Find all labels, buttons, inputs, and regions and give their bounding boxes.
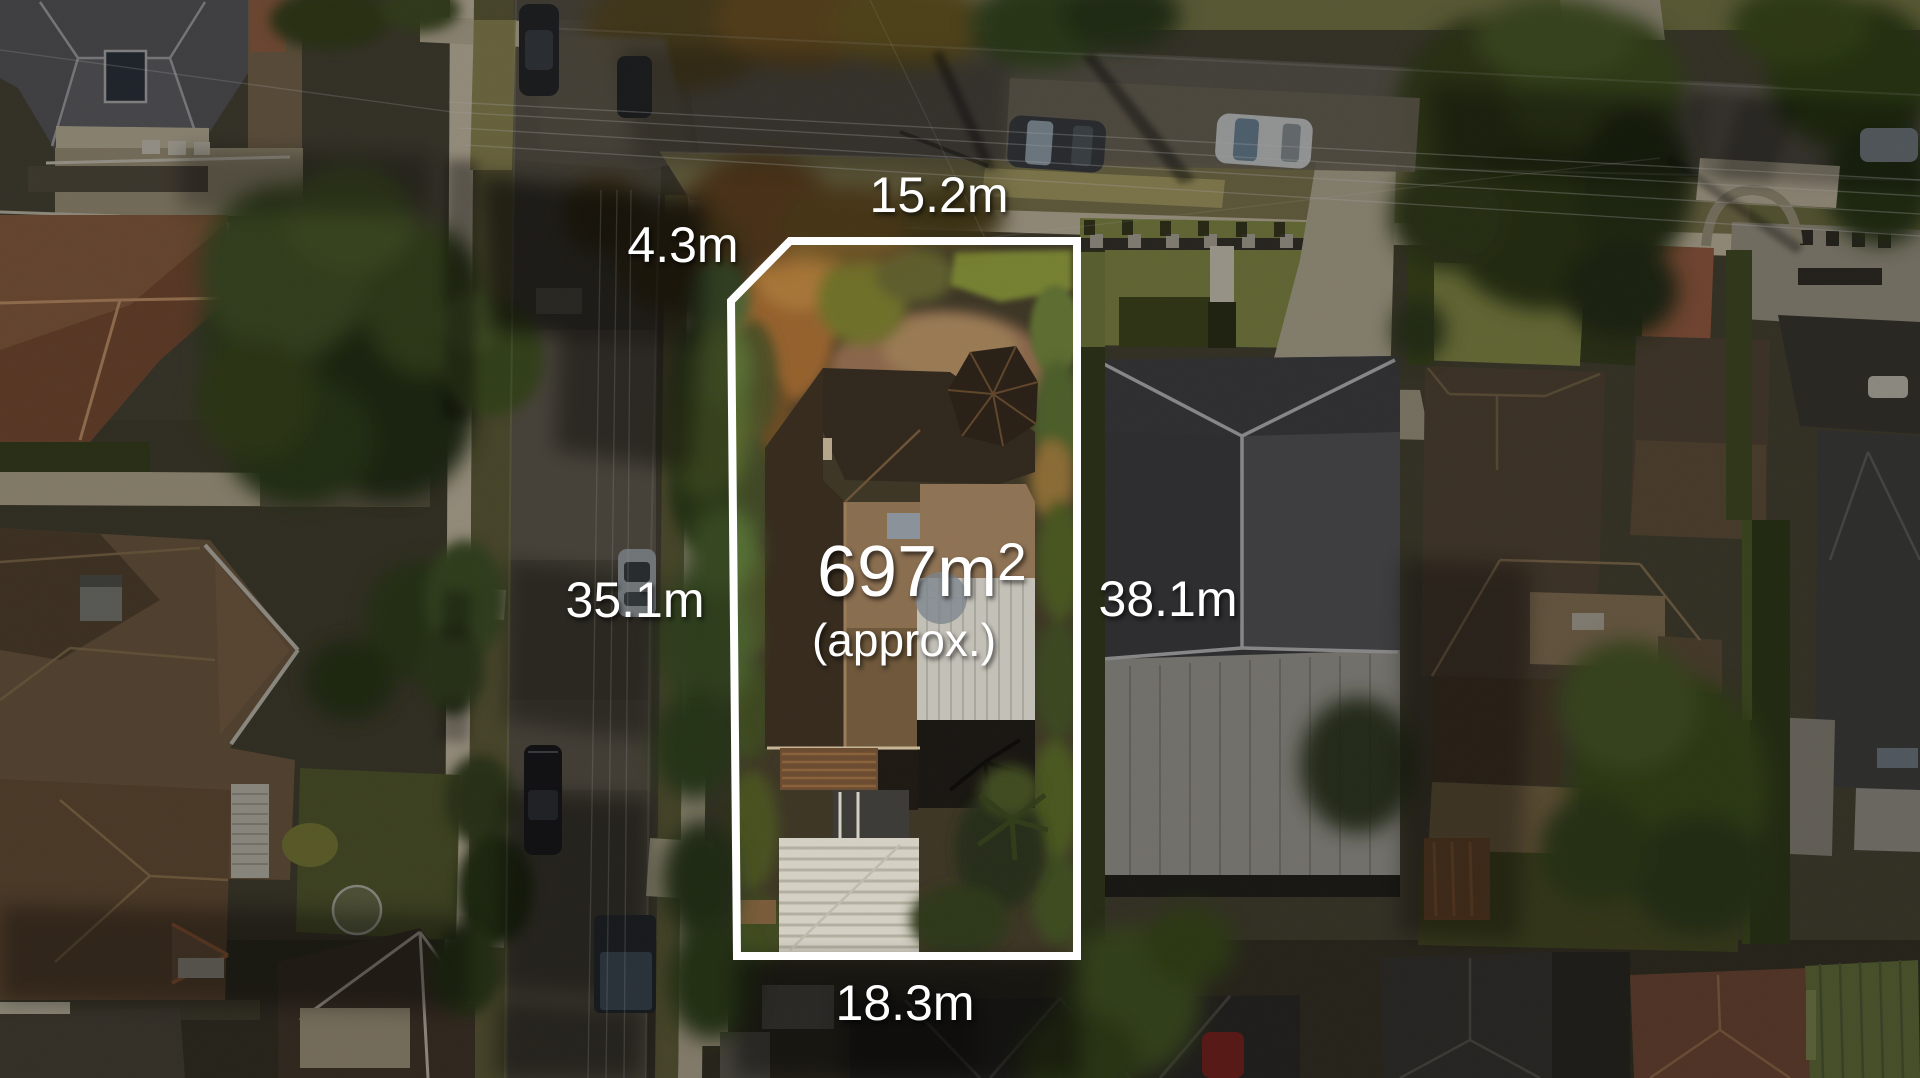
svg-text:15.2m: 15.2m: [870, 167, 1009, 223]
svg-text:18.3m: 18.3m: [836, 975, 975, 1031]
svg-text:4.3m: 4.3m: [627, 217, 738, 273]
svg-text:38.1m: 38.1m: [1099, 571, 1238, 627]
svg-text:(approx.): (approx.): [812, 614, 996, 666]
svg-text:35.1m: 35.1m: [566, 572, 705, 628]
svg-text:697m2: 697m2: [817, 532, 1027, 612]
